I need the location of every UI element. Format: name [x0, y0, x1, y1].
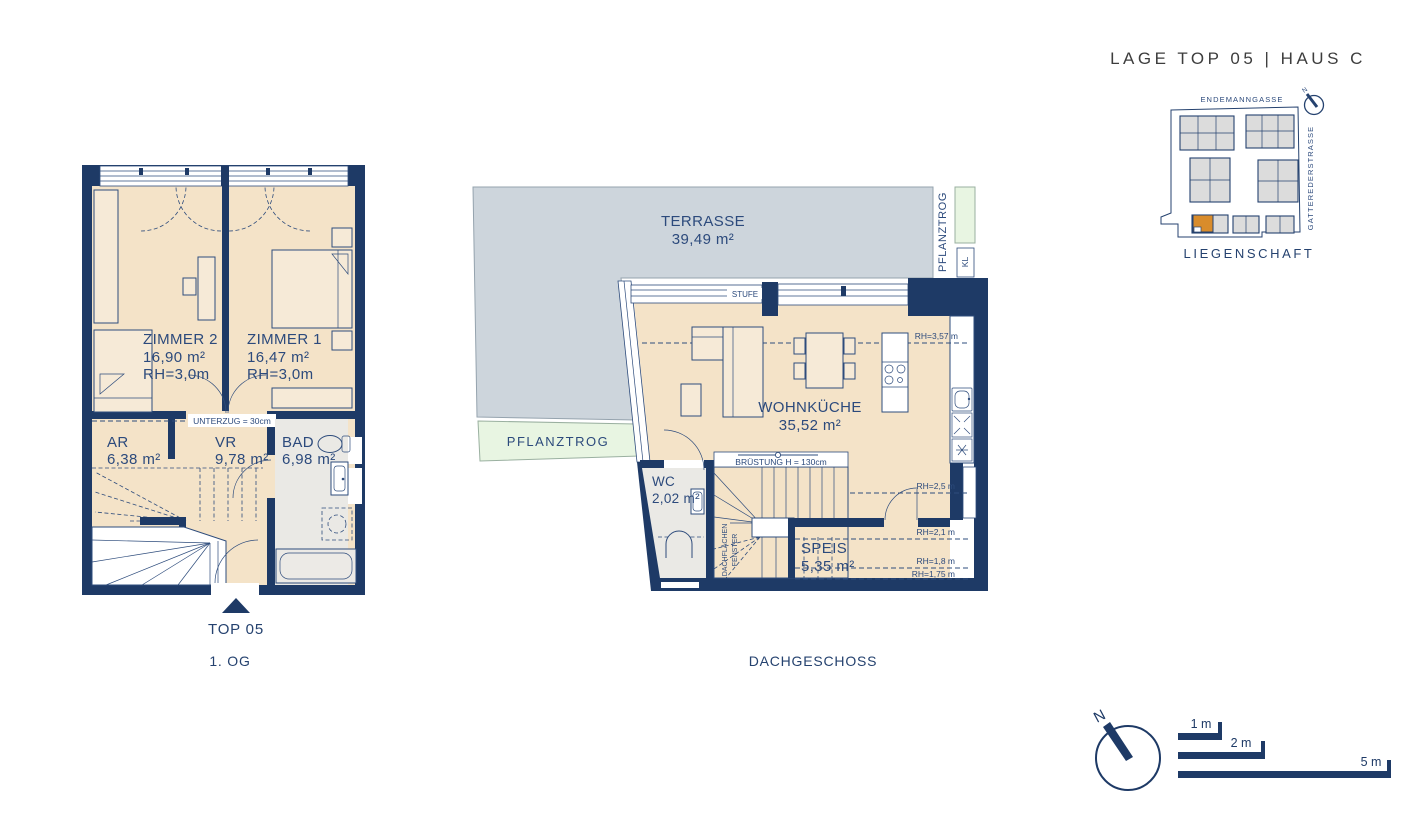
wc-name: WC: [652, 474, 675, 489]
roof-window-label2: FENSTER: [732, 534, 739, 567]
speis-name: SPEIS: [801, 540, 847, 557]
1og-wall-ar-stub: [168, 419, 175, 459]
zimmer2-name: ZIMMER 2: [143, 331, 218, 348]
speis-wall-v: [788, 527, 795, 578]
ar-area: 6,38 m²: [107, 451, 161, 468]
stair-lower-solid: [92, 527, 226, 585]
rh-25-label: RH=2,5 m: [917, 481, 956, 491]
scale-bar-2m: [1178, 752, 1265, 759]
vr-area: 9,78 m²: [215, 451, 269, 468]
nightstand-icon: [332, 331, 352, 350]
compass-n-label: N: [1091, 706, 1109, 726]
ar-name: AR: [107, 434, 129, 451]
stufe-label: STUFE: [732, 290, 758, 299]
dachgeschoss-caption: DACHGESCHOSS: [749, 653, 878, 669]
pflanztrog-side-label: PFLANZTROG: [937, 192, 949, 272]
floor-plan-1og: UNTERZUG = 30cm: [82, 165, 365, 669]
floor-plan-dachgeschoss: PFLANZTROG PFLANZTROG KL STUFE: [473, 187, 988, 669]
zimmer2-rh: RH=3,0m: [143, 366, 210, 383]
top05-label: TOP 05: [208, 621, 264, 638]
plan-drawing: UNTERZUG = 30cm: [0, 0, 1416, 840]
entrance-opening: [211, 583, 259, 595]
floorplan-sheet: UNTERZUG = 30cm: [0, 0, 1416, 840]
rh-357-label: RH=3,57 m: [915, 331, 958, 341]
bathtub-icon: [276, 549, 356, 583]
site-plan: LAGE TOP 05 | HAUS C ENDEMANNGASSE GATTE…: [1110, 49, 1366, 261]
rh-175-label: RH=1,75 m: [912, 569, 955, 579]
kl-label: KL: [960, 257, 970, 268]
nightstand-icon: [332, 228, 352, 247]
speis-wall-right: [918, 518, 950, 527]
sideboard-icon: [272, 388, 352, 408]
page-title: LAGE TOP 05 | HAUS C: [1110, 49, 1366, 68]
rh-18-label: RH=1,8 m: [917, 556, 956, 566]
1og-caption: 1. OG: [209, 653, 250, 669]
zimmer2-area: 16,90 m²: [143, 349, 205, 366]
terrasse-name: TERRASSE: [661, 213, 745, 230]
wc-area: 2,02 m²: [652, 491, 700, 506]
bruestung-label: BRÜSTUNG H = 130cm: [735, 457, 826, 467]
site-compass-icon: N: [1301, 86, 1323, 114]
bed-double-icon: [272, 250, 352, 328]
dg-bottom-wall: [651, 578, 988, 591]
1og-wall-zimmer-divider: [222, 186, 229, 411]
dg-right-wall: [974, 316, 988, 591]
unterzug-label: UNTERZUG = 30cm: [193, 416, 271, 426]
scale-bar-5m: [1178, 771, 1391, 778]
coffee-table-icon: [681, 384, 701, 416]
desk-icon: [198, 257, 215, 320]
terrasse-area: 39,49 m²: [672, 231, 734, 248]
wc-toilet-icon: [666, 531, 692, 558]
speis-area: 5,35 m²: [801, 558, 855, 575]
scale-label-1m: 1 m: [1191, 717, 1212, 731]
stair-landing: [752, 518, 794, 537]
street-right-label: GATTEREDERSTRASSE: [1306, 126, 1315, 230]
scale-bar: 1 m 2 m 5 m: [1178, 717, 1391, 778]
pflanztrog-terrace-label: PFLANZTROG: [507, 434, 609, 449]
wohnkueche-name: WOHNKÜCHE: [758, 398, 862, 416]
chair-icon: [183, 278, 196, 295]
vr-name: VR: [215, 434, 237, 451]
north-compass-icon: N: [1091, 706, 1160, 790]
roof-window-label1: DACHFLÄCHEN: [721, 524, 729, 577]
scale-label-5m: 5 m: [1361, 755, 1382, 769]
wohnkueche-area: 35,52 m²: [779, 417, 841, 434]
liegenschaft-caption: LIEGENSCHAFT: [1184, 246, 1315, 261]
building-block: [1246, 115, 1294, 148]
toilet-icon: [318, 436, 342, 453]
zimmer1-rh: RH=3,0m: [247, 366, 314, 383]
speis-wall-left: [788, 518, 884, 527]
wardrobe-icon: [94, 190, 118, 323]
1og-wall-bad-lower: [267, 498, 275, 585]
entrance-marker-icon: [222, 598, 250, 613]
bad-area: 6,98 m²: [282, 451, 336, 468]
bad-name: BAD: [282, 434, 314, 451]
zimmer1-area: 16,47 m²: [247, 349, 309, 366]
1og-wall-hall-right: [267, 411, 355, 419]
street-top-label: ENDEMANNGASSE: [1200, 95, 1283, 104]
bruestung: BRÜSTUNG H = 130cm: [714, 452, 848, 467]
pflanztrog-side: [955, 187, 975, 243]
scale-bar-1m: [1178, 733, 1222, 740]
highlighted-unit: [1193, 215, 1213, 232]
rh-21-label: RH=2,1 m: [917, 527, 956, 537]
stove-island-icon: [882, 333, 908, 412]
scale-label-2m: 2 m: [1231, 736, 1252, 750]
zimmer1-name: ZIMMER 1: [247, 331, 322, 348]
